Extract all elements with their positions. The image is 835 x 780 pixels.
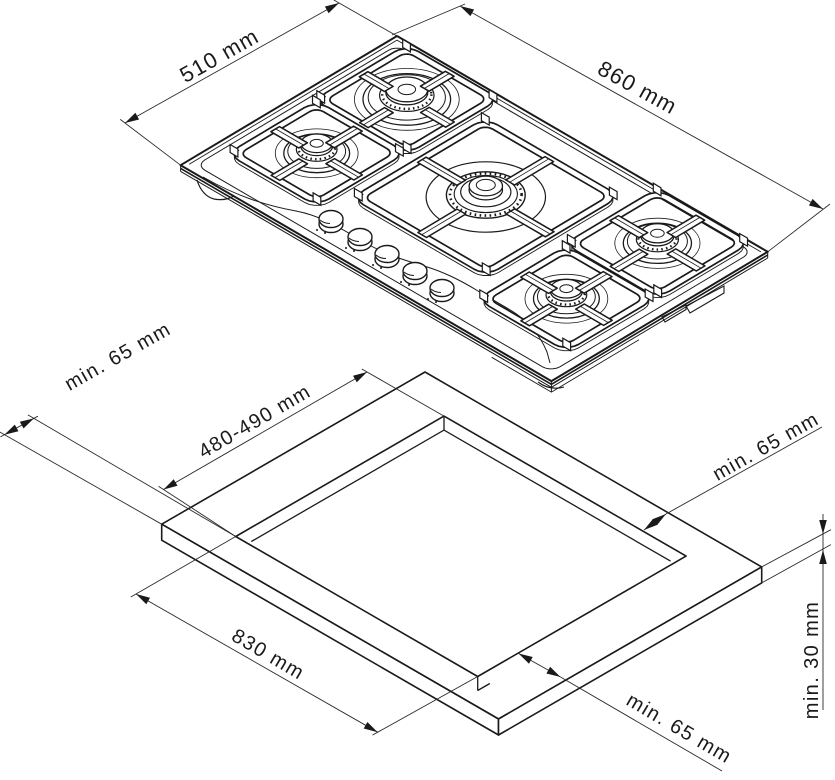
svg-text:min. 30 mm: min. 30 mm (801, 601, 823, 719)
